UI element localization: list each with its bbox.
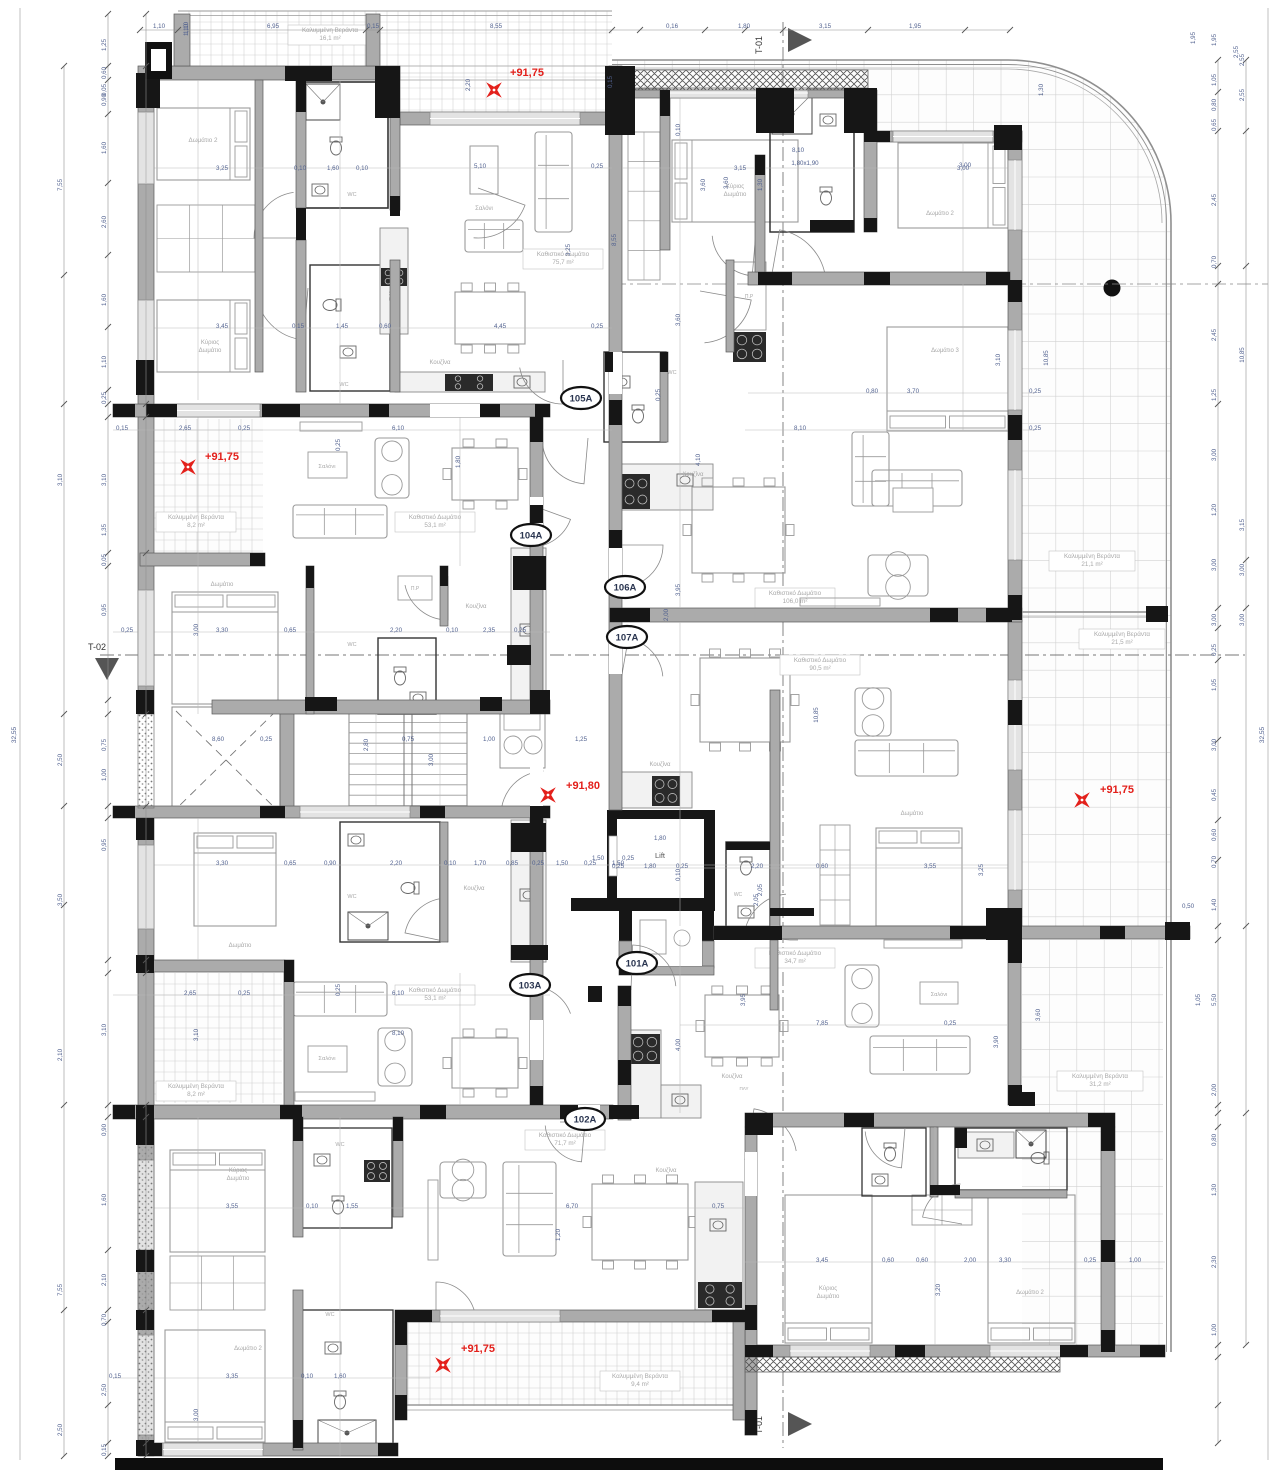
svg-text:1,80: 1,80 <box>455 455 462 468</box>
svg-text:0,25: 0,25 <box>1211 643 1218 656</box>
svg-text:8,2 m²: 8,2 m² <box>187 522 205 529</box>
svg-text:2,05: 2,05 <box>753 893 760 906</box>
svg-text:53,1 m²: 53,1 m² <box>424 522 445 529</box>
svg-text:0,70: 0,70 <box>101 1313 108 1326</box>
svg-text:0,25: 0,25 <box>238 990 251 997</box>
svg-text:8,55: 8,55 <box>611 233 618 246</box>
svg-text:0,90: 0,90 <box>101 93 108 106</box>
svg-text:1,25: 1,25 <box>1211 388 1218 401</box>
svg-text:8,55: 8,55 <box>490 23 503 30</box>
svg-text:1,60: 1,60 <box>101 1193 108 1206</box>
svg-text:3,45: 3,45 <box>216 323 229 330</box>
svg-text:31,2 m²: 31,2 m² <box>1089 1081 1110 1088</box>
svg-text:Κύριος: Κύριος <box>819 1286 837 1292</box>
svg-text:2,10: 2,10 <box>101 1273 108 1286</box>
svg-text:3,30: 3,30 <box>216 627 229 634</box>
svg-text:0,15: 0,15 <box>292 323 305 330</box>
svg-text:3,50: 3,50 <box>57 893 64 906</box>
svg-text:3,25: 3,25 <box>978 863 985 876</box>
svg-text:1,45: 1,45 <box>336 323 349 330</box>
svg-text:Καθιστικό Δωμάτιο: Καθιστικό Δωμάτιο <box>409 513 462 521</box>
svg-text:1,60: 1,60 <box>101 141 108 154</box>
svg-text:10,85: 10,85 <box>813 707 820 723</box>
svg-text:0,80: 0,80 <box>1211 98 1218 111</box>
svg-text:3,55: 3,55 <box>226 1203 239 1210</box>
svg-text:3,15: 3,15 <box>1239 518 1246 531</box>
svg-text:Κουζίνα: Κουζίνα <box>464 886 486 892</box>
svg-text:0,50: 0,50 <box>1182 903 1195 910</box>
svg-text:3,20: 3,20 <box>935 1283 942 1296</box>
svg-text:34,7 m²: 34,7 m² <box>784 958 805 965</box>
svg-text:2,45: 2,45 <box>1211 193 1218 206</box>
svg-text:ΠΛΥ: ΠΛΥ <box>740 1086 749 1091</box>
svg-text:0,10: 0,10 <box>444 860 457 867</box>
svg-text:3,00: 3,00 <box>1239 563 1246 576</box>
svg-text:0,25: 0,25 <box>944 1020 957 1027</box>
svg-text:5,50: 5,50 <box>1211 993 1218 1006</box>
svg-text:0,95: 0,95 <box>101 603 108 616</box>
svg-text:1,80: 1,80 <box>738 23 751 30</box>
svg-text:2,80: 2,80 <box>363 738 370 751</box>
svg-text:0,15: 0,15 <box>116 425 129 432</box>
svg-text:Κουζίνα: Κουζίνα <box>466 604 488 610</box>
svg-text:6,10: 6,10 <box>392 425 405 432</box>
svg-text:0,60: 0,60 <box>916 1257 929 1264</box>
svg-text:4,10: 4,10 <box>695 453 702 466</box>
svg-text:Δωμάτιο 3: Δωμάτιο 3 <box>931 347 959 354</box>
svg-text:71,7 m²: 71,7 m² <box>554 1140 575 1147</box>
svg-text:Δωμάτιο 2: Δωμάτιο 2 <box>234 1345 262 1352</box>
svg-text:0,60: 0,60 <box>101 66 108 79</box>
svg-text:Κύριος: Κύριος <box>229 1168 247 1174</box>
svg-text:0,25: 0,25 <box>1029 425 1042 432</box>
svg-text:2,20: 2,20 <box>390 860 403 867</box>
svg-text:WC: WC <box>734 892 743 898</box>
svg-text:Lift: Lift <box>655 851 666 860</box>
svg-text:103A: 103A <box>519 981 542 992</box>
svg-text:3,00: 3,00 <box>959 162 972 169</box>
svg-text:Καθιστικό Δωμάτιο: Καθιστικό Δωμάτιο <box>537 250 590 258</box>
svg-text:1,60: 1,60 <box>334 1373 347 1380</box>
svg-text:3,35: 3,35 <box>226 1373 239 1380</box>
svg-text:2,50: 2,50 <box>57 1423 64 1436</box>
svg-text:3,60: 3,60 <box>700 178 707 191</box>
svg-text:2,30: 2,30 <box>1211 1255 1218 1268</box>
svg-text:9,4 m²: 9,4 m² <box>631 1381 649 1388</box>
svg-text:+91,75: +91,75 <box>1100 784 1134 796</box>
svg-text:0,05: 0,05 <box>101 553 108 566</box>
svg-text:16,1 m²: 16,1 m² <box>319 35 340 42</box>
svg-text:3,55: 3,55 <box>924 863 937 870</box>
svg-text:1,50: 1,50 <box>556 860 569 867</box>
svg-text:Σαλόνι: Σαλόνι <box>931 991 948 998</box>
svg-text:3,60: 3,60 <box>723 176 730 189</box>
svg-text:Κύριος: Κύριος <box>201 340 219 346</box>
svg-text:106,0 m²: 106,0 m² <box>783 598 808 605</box>
svg-text:1,05: 1,05 <box>1211 73 1218 86</box>
svg-text:6,10: 6,10 <box>392 990 405 997</box>
svg-text:1,50: 1,50 <box>592 855 605 862</box>
svg-text:0,90: 0,90 <box>101 1123 108 1136</box>
svg-text:0,45: 0,45 <box>1211 788 1218 801</box>
svg-text:0,15: 0,15 <box>367 23 380 30</box>
svg-text:104A: 104A <box>520 531 543 542</box>
svg-text:Σαλόνι: Σαλόνι <box>475 205 493 212</box>
svg-text:Δωμάτιο 2: Δωμάτιο 2 <box>926 210 954 217</box>
svg-text:1,00: 1,00 <box>1211 1323 1218 1336</box>
svg-text:2,55: 2,55 <box>1233 45 1240 58</box>
svg-text:0,10: 0,10 <box>675 868 682 881</box>
svg-text:0,10: 0,10 <box>301 1373 314 1380</box>
svg-text:8,10: 8,10 <box>794 425 807 432</box>
svg-text:T-01: T-01 <box>754 36 764 54</box>
svg-text:2,20: 2,20 <box>390 627 403 634</box>
svg-text:0,25: 0,25 <box>238 425 251 432</box>
svg-text:WC: WC <box>347 642 356 648</box>
svg-text:Δωμάτιο 2: Δωμάτιο 2 <box>188 136 218 144</box>
svg-text:4,00: 4,00 <box>675 1038 682 1051</box>
svg-text:2,00: 2,00 <box>964 1257 977 1264</box>
svg-text:3,00: 3,00 <box>428 753 435 766</box>
svg-text:0,15: 0,15 <box>607 75 614 88</box>
svg-text:0,60: 0,60 <box>882 1257 895 1264</box>
svg-text:Καλυμμένη Βεράντα: Καλυμμένη Βεράντα <box>1064 552 1120 560</box>
svg-text:Καθιστικό Δωμάτιο: Καθιστικό Δωμάτιο <box>769 589 822 597</box>
svg-text:2,10: 2,10 <box>57 1048 64 1061</box>
svg-text:3,70: 3,70 <box>907 388 920 395</box>
svg-text:3,10: 3,10 <box>101 473 108 486</box>
svg-text:0,60: 0,60 <box>379 323 392 330</box>
svg-text:0,10: 0,10 <box>675 123 682 136</box>
svg-text:3,10: 3,10 <box>995 353 1002 366</box>
svg-text:3,60: 3,60 <box>1035 1008 1042 1021</box>
svg-text:0,70: 0,70 <box>1211 255 1218 268</box>
svg-text:75,7 m²: 75,7 m² <box>552 259 573 266</box>
svg-text:+91,75: +91,75 <box>205 451 239 463</box>
svg-text:5,10: 5,10 <box>474 163 487 170</box>
svg-text:1,60: 1,60 <box>101 293 108 306</box>
svg-text:1,30: 1,30 <box>1211 1183 1218 1196</box>
svg-text:3,30: 3,30 <box>999 1257 1012 1264</box>
svg-text:0,16: 0,16 <box>666 23 679 30</box>
svg-text:0,65: 0,65 <box>284 627 297 634</box>
svg-text:0,10: 0,10 <box>446 627 459 634</box>
svg-text:3,60: 3,60 <box>675 313 682 326</box>
svg-text:2,50: 2,50 <box>101 1383 108 1396</box>
svg-text:3,30: 3,30 <box>216 860 229 867</box>
svg-text:8,10: 8,10 <box>792 147 805 154</box>
svg-text:1,55: 1,55 <box>346 1203 359 1210</box>
svg-text:3,00: 3,00 <box>1211 738 1218 751</box>
svg-text:Καλυμμένη Βεράντα: Καλυμμένη Βεράντα <box>1072 1072 1128 1080</box>
svg-text:1,25: 1,25 <box>575 736 588 743</box>
svg-text:32,55: 32,55 <box>11 726 18 743</box>
svg-text:1,80: 1,80 <box>644 863 657 870</box>
svg-text:0,90: 0,90 <box>324 860 337 867</box>
svg-text:90,5 m²: 90,5 m² <box>809 665 830 672</box>
svg-text:2,65: 2,65 <box>184 990 197 997</box>
svg-text:0,10: 0,10 <box>306 1203 319 1210</box>
svg-text:Κουζίνα: Κουζίνα <box>722 1074 744 1080</box>
svg-text:0,25: 0,25 <box>260 736 273 743</box>
svg-text:1,80: 1,80 <box>654 835 667 842</box>
svg-text:Κουζίνα: Κουζίνα <box>430 360 452 366</box>
svg-text:2,55: 2,55 <box>1239 53 1246 66</box>
svg-text:8,10: 8,10 <box>392 1030 405 1037</box>
svg-text:3,10: 3,10 <box>57 473 64 486</box>
svg-text:2,60: 2,60 <box>101 215 108 228</box>
svg-text:0,25: 0,25 <box>101 391 108 404</box>
svg-text:8,2 m²: 8,2 m² <box>187 1091 205 1098</box>
svg-text:10,85: 10,85 <box>1239 347 1246 363</box>
svg-text:21,5 m²: 21,5 m² <box>1111 639 1132 646</box>
svg-text:0,25: 0,25 <box>335 983 342 996</box>
svg-text:Σαλόνι: Σαλόνι <box>318 1055 336 1062</box>
svg-text:Καθιστικό Δωμάτιο: Καθιστικό Δωμάτιο <box>409 986 462 994</box>
svg-text:0,10: 0,10 <box>356 165 369 172</box>
svg-text:Κουζίνα: Κουζίνα <box>656 1168 678 1174</box>
svg-text:1,20: 1,20 <box>555 1228 562 1241</box>
svg-text:Καλυμμένη Βεράντα: Καλυμμένη Βεράντα <box>612 1372 668 1380</box>
svg-text:1,80x1,90: 1,80x1,90 <box>791 160 819 167</box>
svg-text:Δωμάτιο 2: Δωμάτιο 2 <box>1016 1289 1044 1296</box>
svg-text:WC: WC <box>667 370 676 376</box>
svg-text:0,70: 0,70 <box>1211 855 1218 868</box>
svg-text:T-02: T-02 <box>88 642 106 652</box>
svg-text:0,65: 0,65 <box>284 860 297 867</box>
svg-text:4,45: 4,45 <box>494 323 507 330</box>
svg-text:Δωμάτιο: Δωμάτιο <box>227 1175 250 1182</box>
svg-text:2,65: 2,65 <box>179 425 192 432</box>
svg-text:0,80: 0,80 <box>1211 1133 1218 1146</box>
svg-text:8,60: 8,60 <box>212 736 225 743</box>
svg-text:3,25: 3,25 <box>565 243 572 256</box>
svg-text:3,10: 3,10 <box>193 1028 200 1041</box>
svg-text:3,95: 3,95 <box>740 993 747 1006</box>
svg-text:107A: 107A <box>616 633 639 644</box>
svg-text:3,00: 3,00 <box>1211 448 1218 461</box>
svg-text:3,00: 3,00 <box>1239 613 1246 626</box>
svg-text:2,00: 2,00 <box>663 608 670 621</box>
svg-text:1,00: 1,00 <box>101 768 108 781</box>
svg-text:+91,75: +91,75 <box>510 67 544 79</box>
svg-text:1,35: 1,35 <box>101 523 108 536</box>
svg-text:0,75: 0,75 <box>402 736 415 743</box>
svg-text:53,1 m²: 53,1 m² <box>424 995 445 1002</box>
svg-text:0,25: 0,25 <box>612 863 625 870</box>
svg-text:1,10: 1,10 <box>183 23 190 36</box>
svg-text:+91,75: +91,75 <box>461 1343 495 1355</box>
svg-text:0,25: 0,25 <box>1029 388 1042 395</box>
svg-text:Δωμάτιο: Δωμάτιο <box>229 942 252 949</box>
svg-text:0,60: 0,60 <box>1211 828 1218 841</box>
svg-text:WC: WC <box>325 1312 334 1318</box>
svg-text:0,75: 0,75 <box>101 738 108 751</box>
svg-text:Π.Ρ: Π.Ρ <box>411 586 420 592</box>
svg-text:0,65: 0,65 <box>1211 118 1218 131</box>
svg-text:3,95: 3,95 <box>675 583 682 596</box>
svg-text:101A: 101A <box>626 959 649 970</box>
svg-text:105A: 105A <box>570 394 593 405</box>
svg-text:Σαλόνι: Σαλόνι <box>318 463 336 470</box>
svg-text:3,15: 3,15 <box>734 165 747 172</box>
svg-text:Καλυμμένη Βεράντα: Καλυμμένη Βεράντα <box>168 1082 224 1090</box>
svg-text:0,60: 0,60 <box>816 863 829 870</box>
svg-text:0,25: 0,25 <box>532 860 545 867</box>
svg-text:1,00: 1,00 <box>1129 1257 1142 1264</box>
svg-text:Δωμάτιο: Δωμάτιο <box>211 581 234 588</box>
svg-text:1,95: 1,95 <box>909 23 922 30</box>
svg-text:3,00: 3,00 <box>193 623 200 636</box>
svg-text:Καλυμμένη Βεράντα: Καλυμμένη Βεράντα <box>1094 630 1150 638</box>
svg-text:WC: WC <box>347 192 356 198</box>
svg-text:1,30: 1,30 <box>1038 83 1045 96</box>
svg-text:10,85: 10,85 <box>1043 350 1050 366</box>
svg-text:Δωμάτιο: Δωμάτιο <box>901 810 924 817</box>
svg-text:Καθιστικό Δωμάτιο: Καθιστικό Δωμάτιο <box>794 656 847 664</box>
svg-text:3,00: 3,00 <box>1211 558 1218 571</box>
svg-text:0,25: 0,25 <box>655 388 662 401</box>
svg-text:WC: WC <box>339 382 348 388</box>
svg-text:7,55: 7,55 <box>57 1283 64 1296</box>
svg-text:0,95: 0,95 <box>101 838 108 851</box>
svg-text:0,15: 0,15 <box>109 1373 122 1380</box>
svg-text:1,20: 1,20 <box>1211 503 1218 516</box>
svg-text:3,45: 3,45 <box>816 1257 829 1264</box>
svg-text:1,40: 1,40 <box>1211 898 1218 911</box>
svg-text:Κουζίνα: Κουζίνα <box>683 472 705 478</box>
svg-text:2,00: 2,00 <box>1211 1083 1218 1096</box>
svg-text:3,25: 3,25 <box>216 165 229 172</box>
svg-text:1,05: 1,05 <box>1195 993 1202 1006</box>
svg-text:0,25: 0,25 <box>335 438 342 451</box>
svg-text:2,35: 2,35 <box>483 627 496 634</box>
svg-text:0,75: 0,75 <box>712 1203 725 1210</box>
svg-text:3,15: 3,15 <box>819 23 832 30</box>
svg-text:WC: WC <box>347 894 356 900</box>
svg-text:1,30: 1,30 <box>757 178 764 191</box>
svg-text:Δωμάτιο: Δωμάτιο <box>199 347 222 354</box>
svg-text:0,15: 0,15 <box>101 1443 108 1456</box>
svg-text:1,70: 1,70 <box>474 860 487 867</box>
svg-text:3,00: 3,00 <box>193 1408 200 1421</box>
svg-text:+91,80: +91,80 <box>566 780 600 792</box>
svg-text:0,25: 0,25 <box>676 863 689 870</box>
svg-text:Δωμάτιο: Δωμάτιο <box>817 1293 840 1300</box>
svg-text:1,95: 1,95 <box>1190 31 1197 44</box>
svg-text:0,25: 0,25 <box>622 855 635 862</box>
svg-text:1,05: 1,05 <box>1211 678 1218 691</box>
svg-text:1,95: 1,95 <box>1211 33 1218 46</box>
svg-text:1,10: 1,10 <box>153 23 166 30</box>
svg-text:Κουζίνα: Κουζίνα <box>650 762 672 768</box>
svg-text:1,00: 1,00 <box>483 736 496 743</box>
svg-text:1,10: 1,10 <box>101 355 108 368</box>
svg-text:0,25: 0,25 <box>1084 1257 1097 1264</box>
svg-text:106A: 106A <box>614 583 637 594</box>
svg-text:1,25: 1,25 <box>101 38 108 51</box>
svg-text:2,20: 2,20 <box>751 863 764 870</box>
svg-text:0,80: 0,80 <box>866 388 879 395</box>
svg-text:0,10: 0,10 <box>294 165 307 172</box>
svg-text:0,85: 0,85 <box>506 860 519 867</box>
svg-text:Δωμάτιο: Δωμάτιο <box>724 191 747 198</box>
svg-text:0,25: 0,25 <box>591 323 604 330</box>
svg-text:3,00: 3,00 <box>1211 613 1218 626</box>
svg-text:7,85: 7,85 <box>816 1020 829 1027</box>
svg-text:32,55: 32,55 <box>1259 726 1266 743</box>
svg-text:0,25: 0,25 <box>514 627 527 634</box>
svg-text:2,55: 2,55 <box>1239 88 1246 101</box>
svg-text:7,55: 7,55 <box>57 178 64 191</box>
svg-text:1,60: 1,60 <box>327 165 340 172</box>
svg-text:102A: 102A <box>574 1115 597 1126</box>
svg-text:3,10: 3,10 <box>101 1023 108 1036</box>
svg-text:2,50: 2,50 <box>57 753 64 766</box>
svg-text:21,1 m²: 21,1 m² <box>1081 561 1102 568</box>
svg-text:6,70: 6,70 <box>566 1203 579 1210</box>
svg-text:0,25: 0,25 <box>121 627 134 634</box>
svg-text:3,90: 3,90 <box>993 1035 1000 1048</box>
svg-text:6,95: 6,95 <box>267 23 280 30</box>
svg-text:0,25: 0,25 <box>591 163 604 170</box>
svg-text:2,45: 2,45 <box>1211 328 1218 341</box>
svg-text:2,20: 2,20 <box>465 78 472 91</box>
svg-text:Καλυμμένη Βεράντα: Καλυμμένη Βεράντα <box>168 513 224 521</box>
